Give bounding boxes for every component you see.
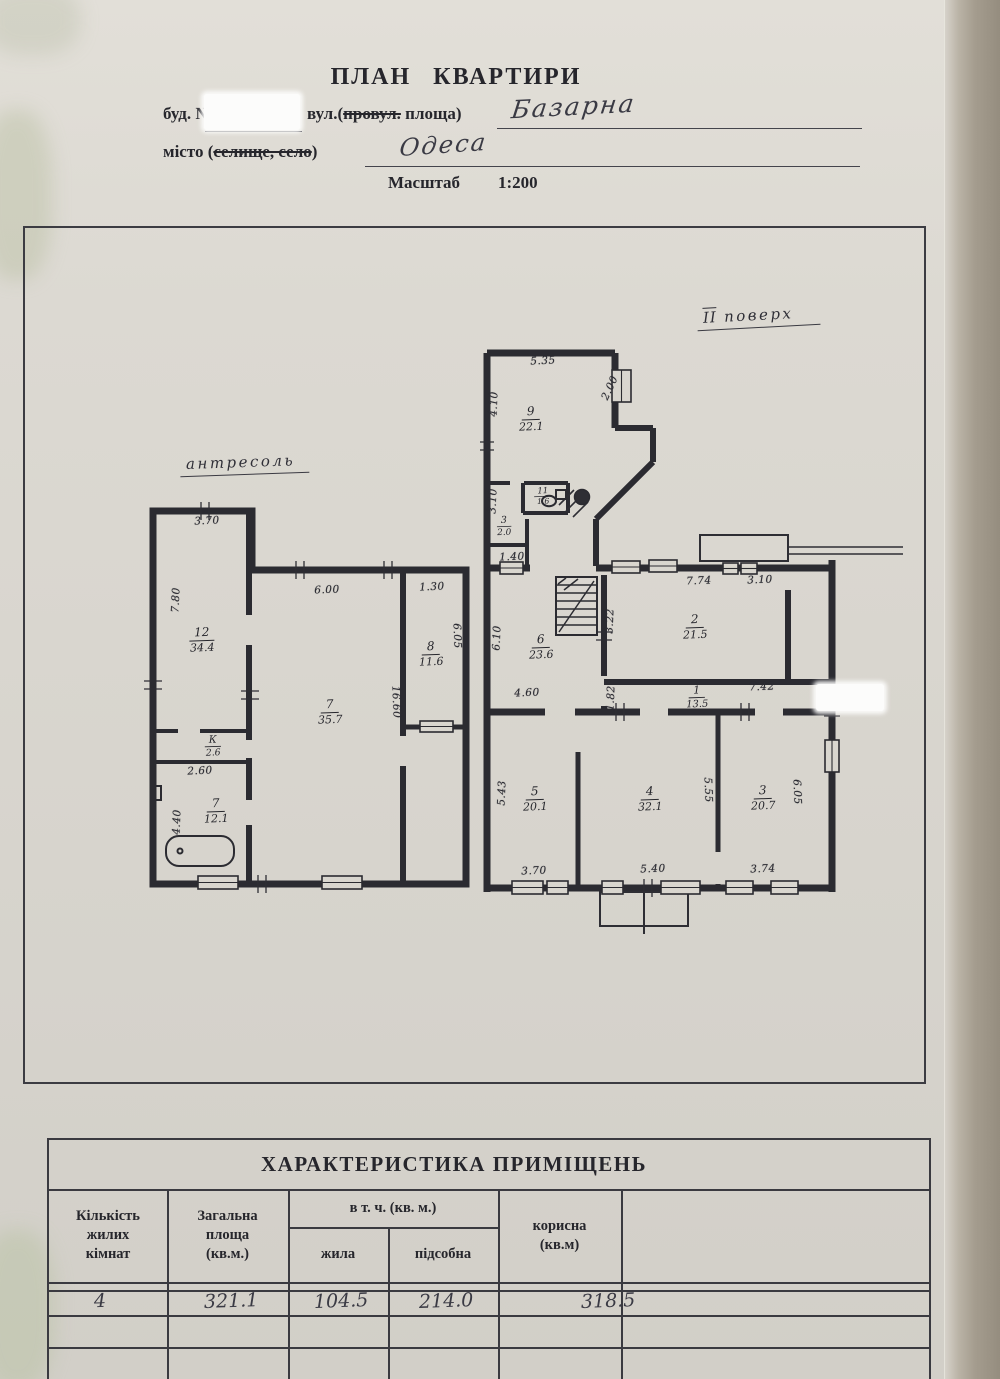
scanned-apartment-plan-photo: ПЛАН КВАРТИРИ буд. № вул.(провул. площа)… [0, 0, 1000, 1379]
value-total-area: 321.1 [204, 1289, 259, 1317]
value-room-count: 4 [94, 1290, 107, 1316]
table-title: ХАРАКТЕРИСТИКА ПРИМІЩЕНЬ [49, 1140, 929, 1189]
column-header-total-area: Загальна площа (кв.м.) [167, 1189, 288, 1282]
value-useful-area: 318.5 [581, 1289, 636, 1317]
mezzanine-section-label: антресоль [180, 451, 310, 477]
column-header-including: в т. ч. (кв. м.) [288, 1189, 498, 1227]
column-header-utility: підсобна [388, 1227, 498, 1282]
column-header-useful: корисна (кв.м) [498, 1189, 621, 1282]
column-header-room-count: Кількість жилих кімнат [49, 1189, 167, 1282]
characteristics-table: ХАРАКТЕРИСТИКА ПРИМІЩЕНЬ Кількість жилих… [47, 1138, 931, 1379]
value-utility-area: 214.0 [419, 1289, 474, 1317]
column-header-living: жила [288, 1227, 388, 1282]
value-living-area: 104.5 [314, 1289, 369, 1317]
redaction-box-plan [816, 684, 884, 711]
photo-edge-shadow [945, 0, 1000, 1379]
